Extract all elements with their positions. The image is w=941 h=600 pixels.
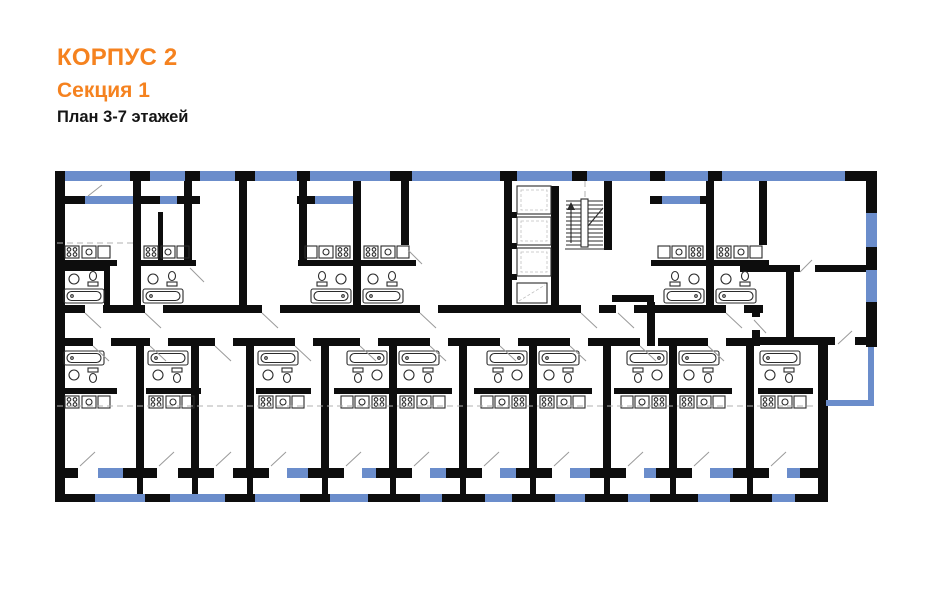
dashed-guides	[57, 181, 816, 406]
corridor-walls	[65, 305, 763, 346]
interior-walls	[55, 181, 866, 468]
screenshot: { "header": { "building": "КОРПУС 2", "s…	[0, 0, 941, 600]
staircase	[565, 199, 604, 249]
apartment-fixtures	[62, 246, 813, 408]
elevator-shafts	[504, 186, 559, 307]
floor-plan	[0, 0, 941, 600]
balcony-outline	[826, 347, 874, 406]
